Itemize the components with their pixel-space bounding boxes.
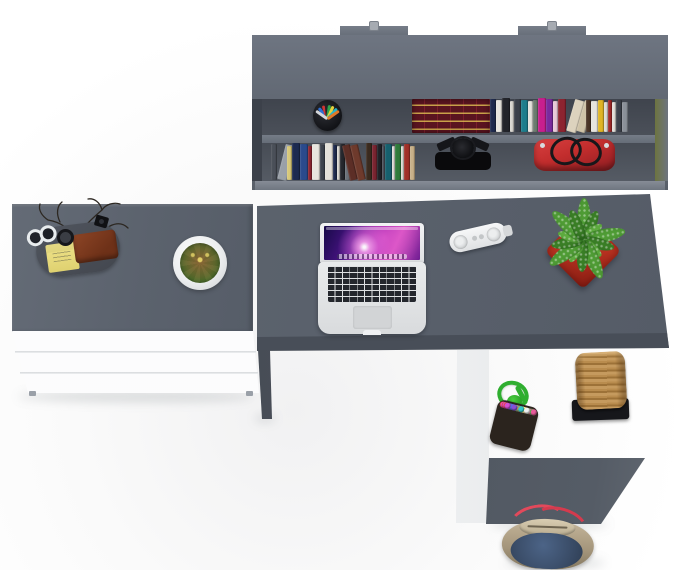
drawer-seam <box>15 351 256 353</box>
laptop-lid <box>320 223 424 263</box>
book-spine <box>591 101 598 132</box>
leather-wallet <box>72 229 119 264</box>
book-spine <box>558 99 566 132</box>
book-spine <box>410 146 415 180</box>
book-spine <box>514 99 521 132</box>
speaker-grille <box>452 233 469 250</box>
wall-hook-icon <box>547 21 557 31</box>
dresser-foot <box>246 391 253 396</box>
book-spine <box>546 99 553 132</box>
cactus <box>180 243 220 283</box>
laptop-lid-notch <box>363 330 381 335</box>
book-spine <box>502 98 510 132</box>
laptop-screen <box>324 226 420 260</box>
book-spine <box>300 144 308 180</box>
book-spine <box>385 144 392 180</box>
speaker-grille <box>485 226 502 243</box>
laptop-trackpad <box>353 306 392 329</box>
book-spine <box>521 100 528 132</box>
book-spine <box>292 143 300 180</box>
book-spine <box>325 143 333 180</box>
laptop-keyboard <box>328 266 416 302</box>
bag-buckle <box>540 143 545 148</box>
canvas-tote-bag <box>499 509 599 570</box>
book-spine <box>312 144 320 180</box>
scene-desk-set-top-view <box>0 0 700 570</box>
red-handbag <box>534 139 615 171</box>
basket <box>575 351 628 411</box>
upper-book-row <box>0 99 700 133</box>
book-spine <box>271 144 277 180</box>
book-spine <box>538 98 546 132</box>
laptop-keyboard-deck <box>318 262 426 334</box>
shelf-front-edge <box>255 181 665 190</box>
laptop-dock <box>337 254 406 259</box>
lamp-head <box>452 138 474 158</box>
succulent-leaves <box>540 192 630 292</box>
drawer-seam <box>20 372 258 374</box>
bead <box>530 409 537 416</box>
speaker-button <box>478 234 484 240</box>
dresser-foot <box>29 391 36 396</box>
laptop-menubar <box>326 227 418 230</box>
book-spine <box>622 102 628 132</box>
speaker-button <box>472 235 478 241</box>
wall-hook-icon <box>369 21 379 31</box>
wristwatch <box>57 229 74 246</box>
bag-buckle <box>604 143 609 148</box>
